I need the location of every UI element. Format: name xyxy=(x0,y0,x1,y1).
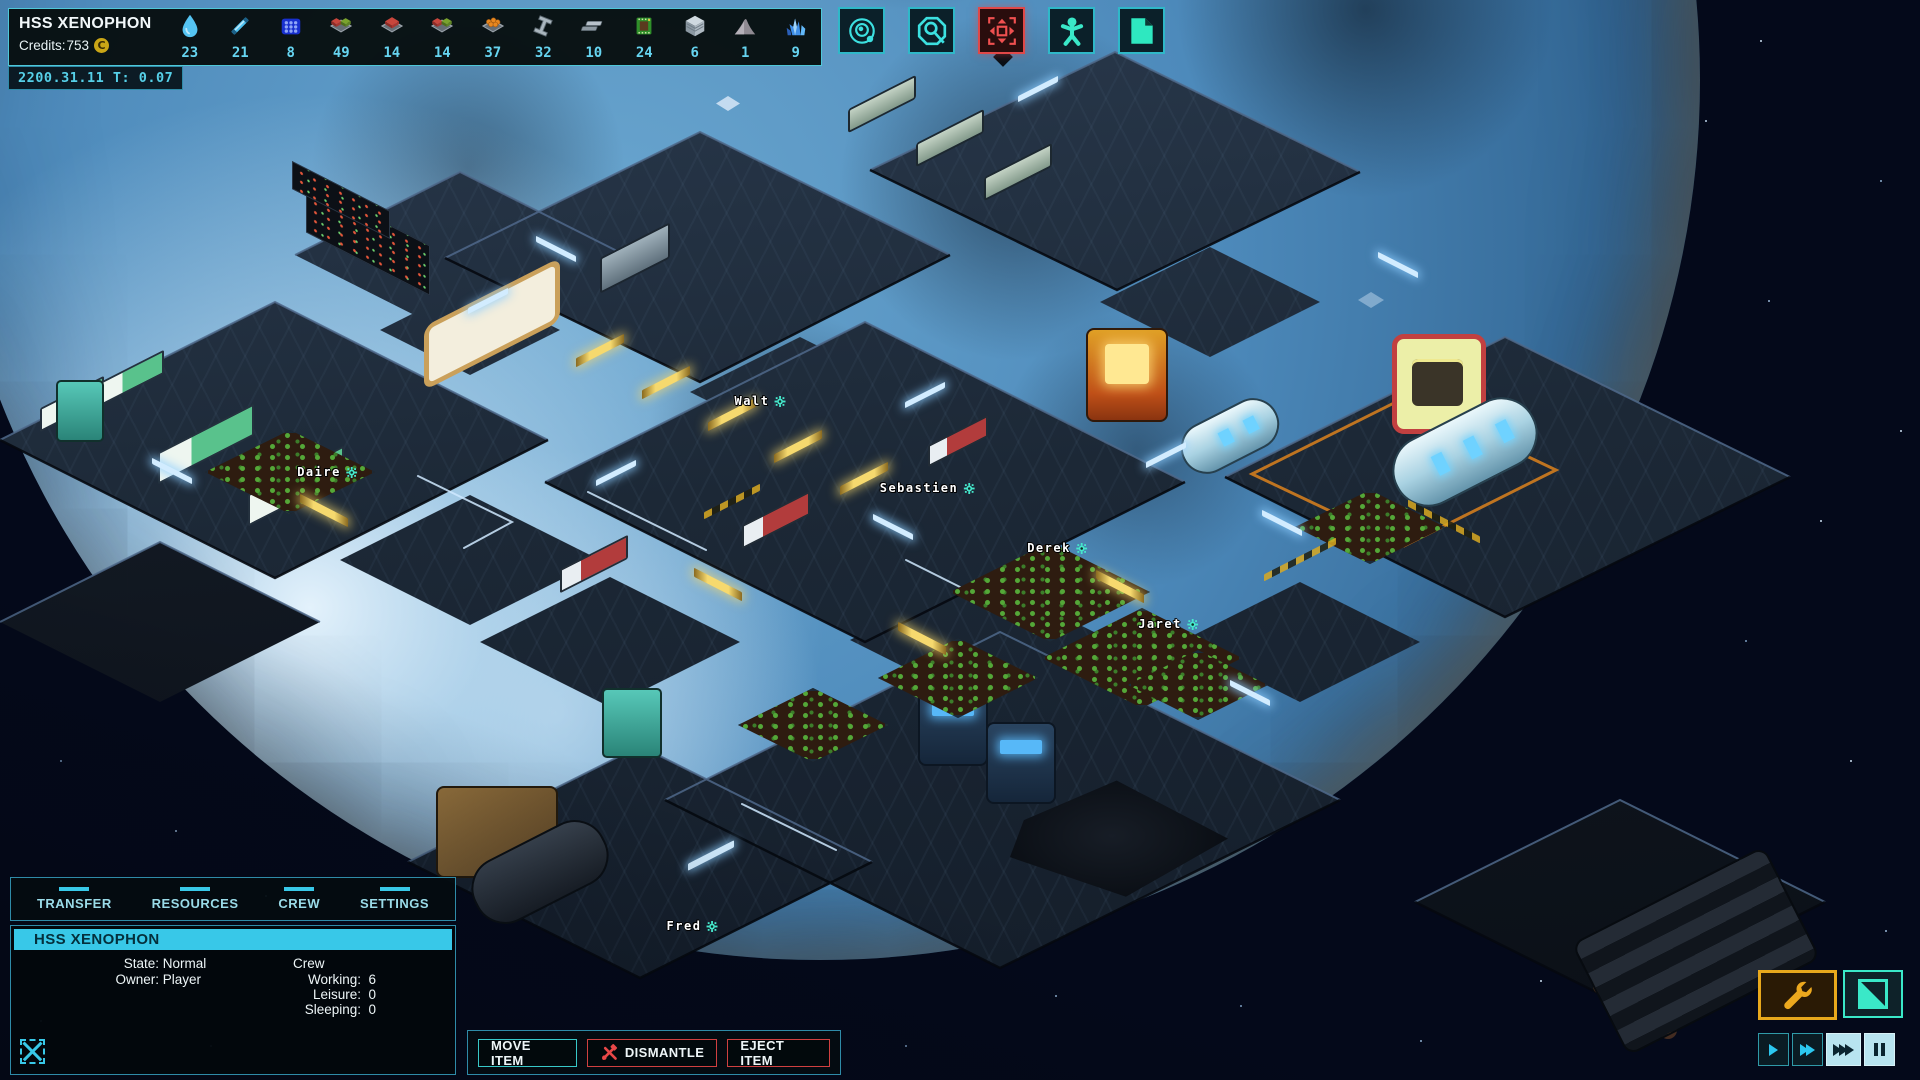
tab-resources[interactable]: RESOURCES xyxy=(152,887,239,911)
machine[interactable] xyxy=(986,722,1056,804)
resource-water[interactable]: 23 xyxy=(165,11,216,63)
crew-leisure-row: Leisure: 0 xyxy=(293,987,376,1002)
orbit-view-button[interactable] xyxy=(838,7,885,54)
research-scan-icon xyxy=(916,15,948,47)
ship-state-row: State: Normal xyxy=(107,956,206,971)
ration-tray-icon xyxy=(429,13,455,39)
resource-ration-red[interactable]: 14 xyxy=(367,11,418,63)
crew-working-row: Working: 6 xyxy=(293,972,376,987)
ship-blueprint-icon xyxy=(1126,15,1158,47)
crew-label-fred[interactable]: Fred xyxy=(667,919,718,933)
credits-label: Credits: xyxy=(19,38,66,53)
ship-panel-tabs: TRANSFER RESOURCES CREW SETTINGS xyxy=(10,877,456,921)
resource-alloy-block[interactable]: 6 xyxy=(670,11,721,63)
resource-steel-beam[interactable]: 32 xyxy=(518,11,569,63)
eject-item-button[interactable]: EJECT ITEM xyxy=(727,1039,830,1067)
tab-crew[interactable]: CREW xyxy=(278,887,320,911)
datetime-badge: 2200.31.11 T: 0.07 xyxy=(8,66,183,90)
resource-sand[interactable]: 1 xyxy=(720,11,771,63)
playback-controls xyxy=(1758,1033,1895,1066)
credits-row: Credits:753 C xyxy=(19,38,165,53)
crew-label-derek[interactable]: Derek xyxy=(1027,541,1087,555)
credits-value: 753 xyxy=(67,38,90,53)
minimap-toggle-button[interactable] xyxy=(1843,970,1903,1018)
fastest-forward-button[interactable] xyxy=(1826,1033,1861,1066)
crew-label-sebastien[interactable]: Sebastien xyxy=(880,481,975,495)
resource-panel: HSS XENOPHON Credits:753 C 23 21 8 49 xyxy=(8,8,822,66)
item-action-bar: MOVE ITEM DISMANTLE EJECT ITEM xyxy=(467,1030,841,1075)
corner-triangle-icon xyxy=(1858,979,1888,1009)
dismantle-button[interactable]: DISMANTLE xyxy=(587,1039,717,1067)
datetime-text: 2200.31.11 T: 0.07 xyxy=(18,70,173,86)
resource-energy-rod[interactable]: 21 xyxy=(215,11,266,63)
crew-label-walt[interactable]: Walt xyxy=(735,394,786,408)
ration-tray-icon xyxy=(328,13,354,39)
resource-metal-plate[interactable]: 10 xyxy=(569,11,620,63)
resource-crystal[interactable]: 9 xyxy=(771,11,822,63)
state-value: Normal xyxy=(163,956,207,971)
game-screen: Walt Daire Sebastien Derek Jaret Fred HS… xyxy=(0,0,1920,1080)
water-icon xyxy=(177,13,203,39)
ship-panel-title: HSS XENOPHON xyxy=(14,929,452,950)
ship-name: HSS XENOPHON xyxy=(19,15,165,33)
ship-info-panel: HSS XENOPHON State: Normal Owner: Player… xyxy=(10,925,456,1075)
circuit-chip-icon xyxy=(631,13,657,39)
main-toolbar xyxy=(838,7,1165,54)
gear-icon xyxy=(706,921,717,932)
water-tank[interactable] xyxy=(56,380,104,442)
ship-identity: HSS XENOPHON Credits:753 C xyxy=(9,9,165,65)
gear-icon xyxy=(1187,619,1198,630)
play-button[interactable] xyxy=(1758,1033,1789,1066)
resource-circuit-chip[interactable]: 24 xyxy=(619,11,670,63)
ship-blueprint-button[interactable] xyxy=(1118,7,1165,54)
orbit-icon xyxy=(846,15,878,47)
crew-icon xyxy=(1056,15,1088,47)
fruit-tray-icon xyxy=(480,13,506,39)
resource-ration-mixed-2[interactable]: 14 xyxy=(417,11,468,63)
alloy-block-icon xyxy=(682,13,708,39)
state-label: State: xyxy=(107,956,159,971)
crew-label-daire[interactable]: Daire xyxy=(297,465,357,479)
build-move-icon xyxy=(986,15,1018,47)
crew-sleeping-row: Sleeping: 0 xyxy=(293,1002,376,1017)
resource-fruit[interactable]: 37 xyxy=(468,11,519,63)
crew-button[interactable] xyxy=(1048,7,1095,54)
furnace-machine[interactable] xyxy=(1086,328,1168,422)
credits-icon: C xyxy=(94,38,109,53)
ration-tray-icon xyxy=(379,13,405,39)
metal-plate-icon xyxy=(581,13,607,39)
gear-icon xyxy=(1076,543,1087,554)
resource-list: 23 21 8 49 14 14 xyxy=(165,9,822,65)
gear-icon xyxy=(346,467,357,478)
resource-ice[interactable]: 8 xyxy=(266,11,317,63)
ice-block-icon xyxy=(278,13,304,39)
resource-ration-mixed[interactable]: 49 xyxy=(316,11,367,63)
move-item-button[interactable]: MOVE ITEM xyxy=(478,1039,577,1067)
build-tools-button[interactable] xyxy=(1758,970,1837,1020)
gear-icon xyxy=(774,396,785,407)
ship-owner-row: Owner: Player xyxy=(99,972,201,987)
owner-label: Owner: xyxy=(99,972,159,987)
crew-label-jaret[interactable]: Jaret xyxy=(1138,617,1198,631)
crystal-icon xyxy=(783,13,809,39)
build-move-button[interactable] xyxy=(978,7,1025,54)
wrench-icon xyxy=(1781,978,1815,1012)
tab-transfer[interactable]: TRANSFER xyxy=(37,887,112,911)
tab-settings[interactable]: SETTINGS xyxy=(360,887,429,911)
locker[interactable] xyxy=(602,688,662,758)
dismantle-tools-icon xyxy=(600,1043,619,1062)
research-button[interactable] xyxy=(908,7,955,54)
sand-pile-icon xyxy=(732,13,758,39)
steel-beam-icon xyxy=(530,13,556,39)
fast-forward-button[interactable] xyxy=(1792,1033,1823,1066)
pause-button[interactable] xyxy=(1864,1033,1895,1066)
clear-selection-icon[interactable] xyxy=(20,1039,45,1064)
owner-value: Player xyxy=(163,972,201,987)
gear-icon xyxy=(963,483,974,494)
energy-rod-icon xyxy=(227,13,253,39)
crew-header: Crew xyxy=(293,956,325,971)
